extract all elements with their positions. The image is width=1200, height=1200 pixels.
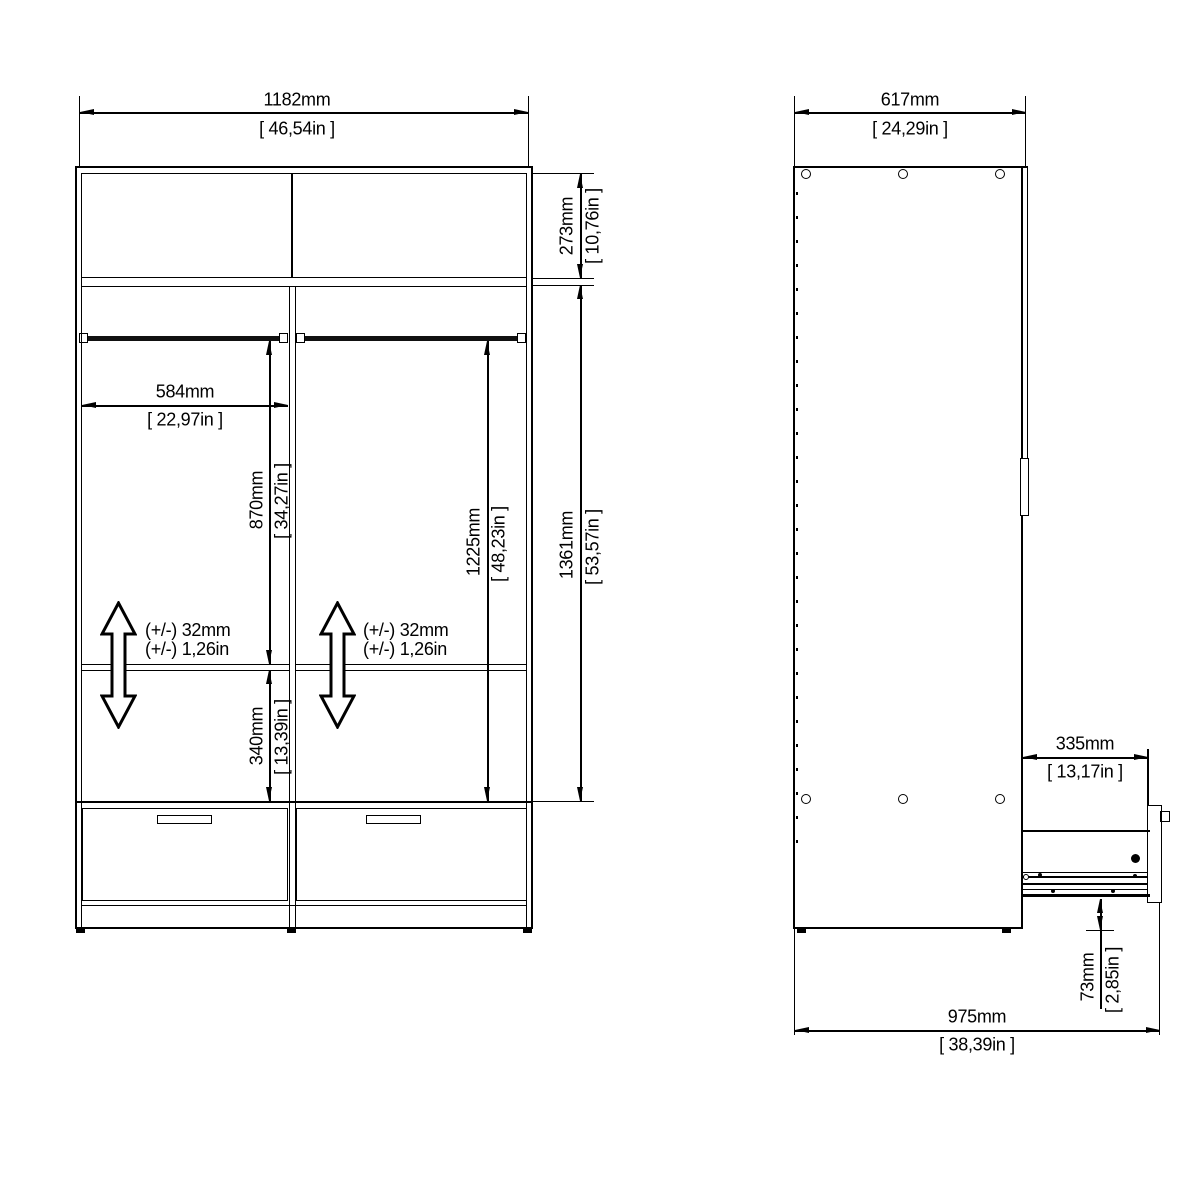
assembly-hole [995,794,1005,804]
dim-compartment-arrow-right [274,402,288,408]
hanging-rail-left [88,336,280,341]
dim-topsection-arrow-up [577,174,583,188]
dim-clearance-floor-ext [1086,930,1114,931]
dim-depth-arrow-left [795,109,809,115]
dim-depth-in: [ 24,29in ] [872,119,948,140]
dim-shelfdrawer-arrow-down [266,787,272,801]
foot [523,929,532,933]
dim-clearance-in: [ 2,85in ] [1103,947,1124,1013]
top-panel-inner-line [81,173,527,174]
assembly-hole [898,794,908,804]
shelf-adjust-left-mm: (+/-) 32mm [145,620,231,641]
dim-topsection-line [580,174,582,278]
dim-extension-ext [1147,749,1149,805]
dim-interior-in: [ 53,57in ] [583,509,604,585]
rail-bracket [517,333,526,343]
drawer-side-top-line [1022,830,1150,832]
rail-bracket [279,333,288,343]
ext-drawer-top [533,801,594,802]
drawer-handle-left [157,815,212,824]
dim-shelfdrawer-mm: 340mm [247,707,268,766]
dim-railheight-in: [ 48,23in ] [489,506,510,582]
side-top-edge [793,166,1028,168]
dim-topsection-arrow-down [577,264,583,278]
slide-screw [1111,889,1115,893]
dim-interior-mm: 1361mm [557,511,578,579]
side-bottom-edge [793,927,1023,929]
dim-railheight-arrow-up [484,341,490,355]
dim-shelfdrawer-arrow-up [266,670,272,684]
slide-screw [1133,874,1137,878]
assembly-hole [801,794,811,804]
dim-extension-line [1023,757,1148,759]
dim-railshelf-mm: 870mm [247,471,268,530]
assembly-hole [801,169,811,179]
foot [1002,929,1011,933]
ext-top-interior [533,173,594,174]
dim-width-in: [ 46,54in ] [259,119,335,140]
side-front-edge [1021,168,1023,927]
dim-topsection-in: [ 10,76in ] [583,188,604,264]
dim-width-line [80,112,528,114]
dim-railshelf-arrow-down [266,650,272,664]
dim-shelfdrawer-line [269,670,271,801]
shelf-adjust-arrow-right [319,601,356,729]
dim-compartment-line [82,405,288,407]
dim-totaldepth-ext-left [794,929,795,1035]
dim-totaldepth-arrow-right [1146,1027,1160,1033]
dim-depth-arrow-right [1012,109,1026,115]
plinth-line [82,905,526,906]
rail-bracket [79,333,88,343]
dim-railshelf-in: [ 34,27in ] [272,463,293,539]
dim-compartment-in: [ 22,97in ] [147,410,223,431]
foot [797,929,806,933]
dim-extension-in: [ 13,17in ] [1047,762,1123,783]
dim-totaldepth-ext-right [1159,902,1160,1035]
center-divider-upper [291,173,293,277]
dim-extension-mm: 335mm [1056,734,1115,755]
dim-totaldepth-arrow-left [795,1027,809,1033]
dim-railheight-arrow-down [484,787,490,801]
slide-screw-hole [1023,874,1029,880]
dim-width-arrow-left [80,109,94,115]
drawer-handle-lip [1160,811,1170,822]
drawer-slide-rail [1022,894,1150,897]
dim-totaldepth-in: [ 38,39in ] [939,1035,1015,1056]
dim-railshelf-line [269,341,271,664]
dim-width-ext-right [528,96,529,167]
ext-shelf-top [533,278,594,279]
dim-shelfdrawer-in: [ 13,39in ] [272,699,293,775]
dim-depth-line [795,112,1026,114]
dim-clearance-arrow-up [1097,899,1103,913]
slide-screw [1038,873,1042,877]
dim-interior-line [580,285,582,801]
foot [76,929,85,933]
dim-width-arrow-right [514,109,528,115]
fixed-top-shelf [81,277,527,287]
shelf-adjust-left-in: (+/-) 1,26in [145,639,229,660]
dim-totaldepth-mm: 975mm [948,1007,1007,1028]
drawer-handle-right [366,815,421,824]
dim-width-ext-left [79,96,80,167]
shelf-adjust-right-in: (+/-) 1,26in [363,639,447,660]
center-divider [289,286,296,927]
door-handle-profile [1020,458,1030,516]
dim-interior-arrow-down [577,787,583,801]
dim-width-mm: 1182mm [264,90,331,111]
rail-bracket [296,333,305,343]
dim-clearance-mm: 73mm [1078,953,1099,1002]
dim-topsection-mm: 273mm [557,197,578,256]
shelf-adjust-arrow-left [100,601,137,729]
dim-clearance-arrow-down [1097,916,1103,930]
drawer-knob [1131,854,1140,863]
dim-totaldepth-line [795,1030,1160,1032]
dim-railshelf-arrow-up [266,341,272,355]
assembly-hole [898,169,908,179]
dim-extension-arrow-left [1023,754,1037,760]
shelf-adjust-right-mm: (+/-) 32mm [363,620,449,641]
ext-shelf-bottom [533,285,594,286]
dim-interior-arrow-up [577,285,583,299]
dim-compartment-arrow-left [82,402,96,408]
dim-depth-ext-right [1025,96,1026,167]
dim-compartment-mm: 584mm [156,382,215,403]
door-front-line [1027,168,1029,458]
dim-depth-mm: 617mm [881,90,940,111]
shelf-pin-holes [796,192,799,852]
drawer-section-top-line [77,801,531,803]
dim-depth-ext-left [794,96,795,167]
drawer-slide-rail [1022,883,1148,885]
assembly-hole [995,169,1005,179]
drawer-slide-rail [1022,889,1148,890]
foot [287,929,296,933]
slide-screw [1051,889,1055,893]
technical-drawing-canvas: 1182mm [ 46,54in ] [0,0,1200,1200]
dim-extension-arrow-right [1134,754,1148,760]
dim-railheight-mm: 1225mm [464,508,485,576]
